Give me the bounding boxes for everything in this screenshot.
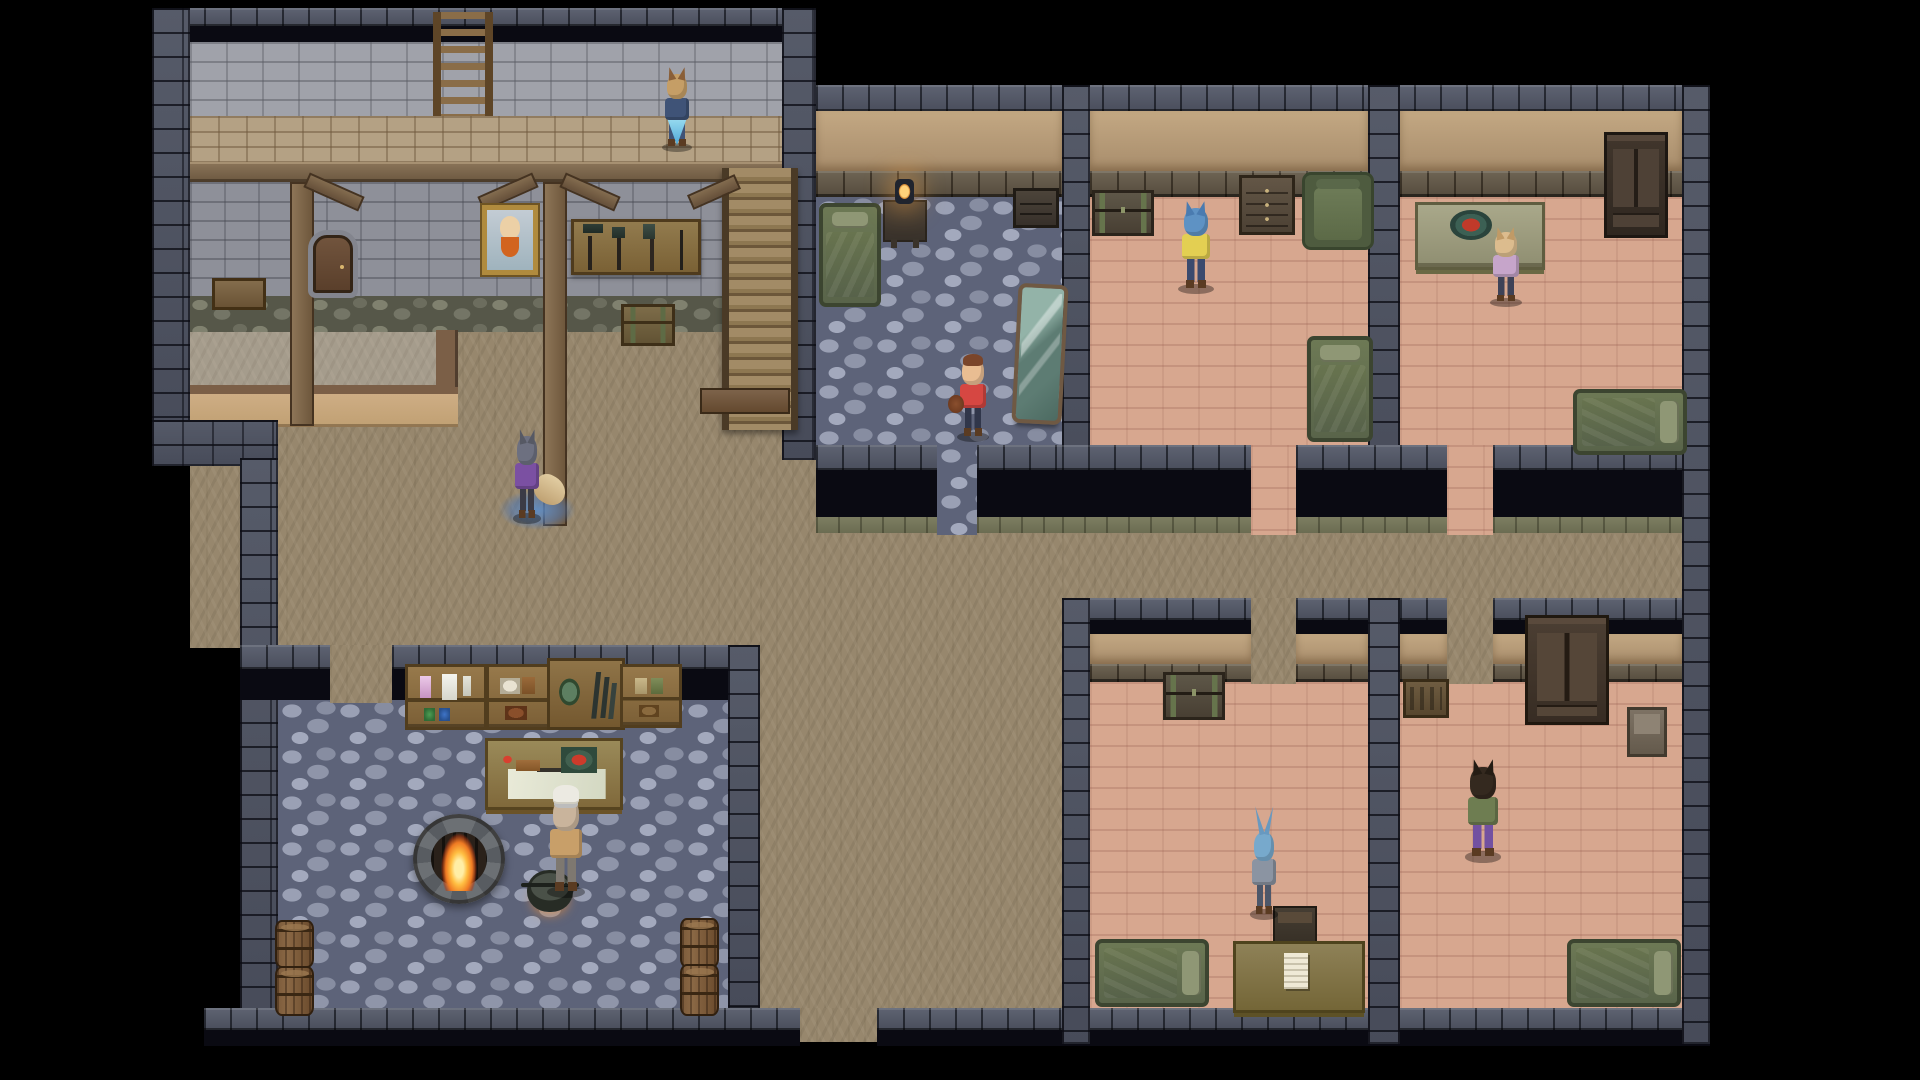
- grey-cat-cleaner-legs: [520, 485, 535, 511]
- wall-moss-44: [1062, 517, 1251, 533]
- wall-dark-50: [1062, 620, 1251, 634]
- room1-trunk[interactable]: [1092, 190, 1154, 236]
- wall-dark-20: [204, 1030, 800, 1046]
- wall-dark-38: [977, 470, 1062, 517]
- utensil-rack[interactable]: [547, 658, 625, 730]
- barrel-1[interactable]: [275, 920, 314, 968]
- kitchen-doorway: [330, 645, 392, 703]
- wall-dark-40: [1296, 470, 1447, 517]
- grey-cat-cleaner-head: [517, 436, 537, 465]
- game-viewport: [0, 0, 1920, 1080]
- wall-moss-46: [1493, 517, 1682, 533]
- storage-chest[interactable]: [621, 304, 675, 346]
- room1-doorway: [1251, 445, 1296, 535]
- room3-bed[interactable]: [1095, 939, 1209, 1007]
- wall-stone-31: [1682, 85, 1710, 1044]
- room2-doorway: [1447, 445, 1493, 535]
- stair-rail: [700, 388, 790, 414]
- hallway-floor: [1062, 533, 1682, 600]
- wall-stone-17: [728, 645, 760, 1008]
- wall-rubble-8: [190, 296, 782, 332]
- red-shirt-guest[interactable]: [954, 356, 992, 440]
- bunny-guest-torso: [1252, 859, 1275, 885]
- horse-guest-torso: [1468, 797, 1498, 825]
- room2-bed[interactable]: [1573, 389, 1687, 455]
- blue-wolf-guest-legs: [1187, 256, 1205, 282]
- drawer-chest[interactable]: [1013, 188, 1059, 228]
- wall-trim-56: [1296, 664, 1368, 682]
- red-shirt-guest-legs: [965, 405, 982, 430]
- room4-bed[interactable]: [1567, 939, 1681, 1007]
- wall-tan-54: [1296, 634, 1368, 664]
- pink-shirt-guest-legs: [1498, 274, 1515, 296]
- support-post-left: [290, 182, 314, 426]
- cook-torso: [550, 829, 581, 858]
- cat-innkeeper-on-balcony[interactable]: [659, 72, 695, 150]
- grey-cat-cleaner[interactable]: [510, 434, 544, 522]
- horse-guest-head: [1470, 767, 1496, 799]
- blue-wolf-guest-torso: [1182, 234, 1211, 259]
- bunny-guest-head: [1254, 832, 1274, 861]
- wall-stonerow-47: [1062, 598, 1251, 620]
- cook-chef-hat: [553, 785, 579, 802]
- wall-moss-42: [816, 517, 937, 533]
- wall-stone-2: [152, 8, 190, 460]
- room4-doorway: [1447, 598, 1493, 684]
- cat-innkeeper-on-balcony-head: [667, 74, 688, 100]
- pink-shirt-guest-feet: [1497, 295, 1515, 302]
- red-shirt-guest-held-item: [948, 395, 964, 413]
- red-shirt-guest-feet: [964, 428, 982, 436]
- bunny-guest-feet: [1256, 906, 1272, 914]
- wall-beam-6: [190, 162, 782, 182]
- room2-wardrobe[interactable]: [1604, 132, 1668, 238]
- room3-trunk[interactable]: [1163, 672, 1225, 720]
- spice-shelf[interactable]: [620, 664, 682, 728]
- room1-dresser[interactable]: [1239, 175, 1295, 235]
- pink-shirt-guest-head: [1495, 232, 1517, 256]
- wall-stone-62: [1368, 598, 1400, 1044]
- wall-tan-25: [1090, 111, 1368, 171]
- wall-tan-23: [816, 111, 1062, 171]
- wall-stonerow-13: [240, 645, 330, 669]
- wall-tan-53: [1090, 634, 1251, 664]
- wall-dark-37: [816, 470, 937, 517]
- room1-bed[interactable]: [1307, 336, 1373, 442]
- grey-cat-cleaner-torso: [515, 463, 538, 489]
- wall-stone-12: [240, 458, 278, 1044]
- room3-doorway: [1251, 598, 1296, 684]
- bunny-guest[interactable]: [1247, 830, 1281, 918]
- wall-dark-21: [877, 1030, 1710, 1046]
- pink-shirt-guest[interactable]: [1487, 231, 1525, 305]
- crockery-shelf[interactable]: [486, 664, 550, 730]
- wall-platedge-10: [436, 330, 458, 387]
- wall-stonerow-35: [1296, 445, 1447, 470]
- red-shirt-guest-torso: [960, 384, 986, 408]
- cook-legs: [556, 854, 576, 884]
- wall-stonerow-32: [816, 445, 937, 470]
- potion-shelf[interactable]: [405, 664, 487, 730]
- cat-innkeeper-on-balcony-torso: [665, 98, 689, 121]
- blue-wolf-guest[interactable]: [1175, 206, 1217, 292]
- wall-shelf[interactable]: [1403, 679, 1449, 718]
- barrel-4[interactable]: [680, 964, 719, 1016]
- fire-pit[interactable]: [413, 814, 505, 904]
- wall-dark-39: [1062, 470, 1251, 517]
- bench[interactable]: [212, 278, 266, 310]
- wall-stonerow-22: [816, 85, 1710, 111]
- south-exit-doorway: [800, 1008, 877, 1042]
- room4-stool[interactable]: [1627, 707, 1667, 757]
- cook[interactable]: [543, 796, 589, 896]
- wall-tan-57: [1400, 634, 1447, 664]
- barrel-2[interactable]: [275, 966, 314, 1016]
- barrel-3[interactable]: [680, 918, 719, 968]
- wall-moss-45: [1296, 517, 1447, 533]
- wall-stonerow-34: [1062, 445, 1251, 470]
- horse-guest[interactable]: [1461, 765, 1505, 861]
- blue-wolf-guest-feet: [1186, 280, 1206, 288]
- room4-cabinet[interactable]: [1525, 615, 1609, 725]
- wall-stonerow-33: [977, 445, 1062, 470]
- portrait-painting[interactable]: [482, 205, 538, 275]
- red-shirt-guest-hair: [963, 354, 983, 366]
- wall-dark-15: [240, 669, 330, 700]
- tool-rack[interactable]: [571, 219, 701, 275]
- writing-desk[interactable]: [1233, 941, 1365, 1013]
- exit-ladder[interactable]: [433, 12, 493, 116]
- room1-armchair[interactable]: [1302, 172, 1374, 250]
- common-room-cot[interactable]: [819, 203, 881, 307]
- wooden-door[interactable]: [313, 235, 353, 293]
- horse-guest-feet: [1472, 848, 1493, 857]
- bunny-guest-legs: [1257, 881, 1272, 907]
- standing-mirror[interactable]: [1011, 283, 1068, 425]
- wall-stone-61: [1062, 598, 1090, 1044]
- wall-dark-41: [1493, 470, 1682, 517]
- pink-shirt-guest-torso: [1493, 255, 1519, 276]
- lantern-table[interactable]: [883, 200, 927, 242]
- wall-moss-43: [977, 517, 1062, 533]
- grey-cat-cleaner-feet: [519, 510, 535, 518]
- cook-feet: [555, 882, 577, 891]
- table-with-basin[interactable]: [1415, 202, 1545, 270]
- horse-guest-legs: [1473, 821, 1492, 850]
- common-room-doorway: [937, 445, 977, 535]
- blue-wolf-guest-head: [1184, 208, 1208, 236]
